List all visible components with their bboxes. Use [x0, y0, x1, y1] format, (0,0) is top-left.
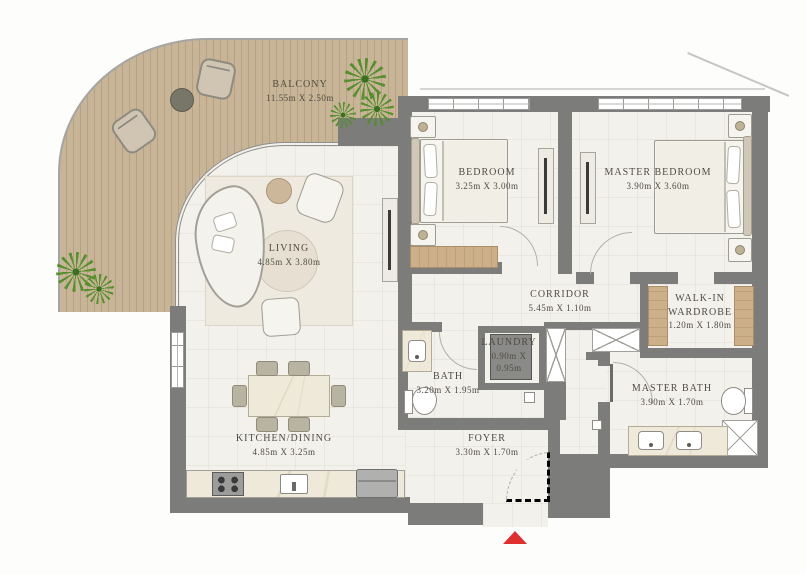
nightstand	[410, 224, 436, 246]
room-name: CORRIDOR	[504, 288, 616, 302]
nightstand	[728, 238, 752, 262]
roof-edge-line	[687, 52, 789, 97]
room-dims: 5.45m X 1.10m	[504, 302, 616, 314]
wall	[598, 352, 610, 366]
plant-icon	[84, 274, 114, 304]
pillow	[726, 146, 741, 185]
nightstand	[728, 114, 752, 138]
room-label-balcony: BALCONY 11.55m X 2.50m	[238, 78, 362, 104]
room-name: MASTER BEDROOM	[596, 166, 720, 180]
room-dims: 11.55m X 2.50m	[238, 92, 362, 104]
room-name: WALK-IN WARDROBE	[660, 292, 740, 319]
service-shaft	[546, 328, 566, 382]
room-name: BALCONY	[238, 78, 362, 92]
wall	[548, 388, 560, 458]
room-dims: 3.25m X 3.00m	[430, 180, 544, 192]
wall	[640, 348, 768, 358]
sink	[408, 340, 426, 362]
bed-headboard	[743, 136, 752, 236]
dining-table	[248, 375, 330, 417]
room-dims: 4.85m X 3.80m	[239, 256, 339, 268]
wall	[630, 272, 678, 284]
window	[598, 98, 742, 110]
entrance-floor	[483, 503, 548, 527]
room-name: BATH	[406, 370, 490, 384]
room-name: LAUNDRY	[478, 336, 540, 350]
bed-headboard	[411, 138, 420, 224]
sink	[676, 431, 702, 450]
parapet-line	[420, 88, 765, 90]
room-name: LIVING	[239, 242, 339, 256]
window	[171, 332, 184, 388]
service-shaft	[592, 328, 640, 352]
dining-chair	[288, 417, 310, 432]
room-label-living: LIVING 4.85m X 3.80m	[239, 242, 339, 268]
side-table	[170, 88, 194, 112]
faucet-icon	[292, 482, 296, 491]
tv-icon	[544, 158, 547, 214]
plant-icon	[360, 92, 394, 126]
room-label-master-bath: MASTER BATH 3.90m X 1.70m	[614, 382, 730, 408]
room-name: MASTER BATH	[614, 382, 730, 396]
pillow	[726, 190, 741, 229]
lamp-icon	[418, 230, 428, 240]
room-name: FOYER	[437, 432, 537, 446]
coffee-table	[266, 178, 292, 204]
room-dims: 3.20m X 1.95m	[406, 384, 490, 396]
room-label-laundry: LAUNDRY 0.90m X 0.95m	[478, 336, 540, 374]
room-name: BEDROOM	[430, 166, 544, 180]
armchair	[261, 297, 302, 338]
switch-box	[524, 392, 535, 403]
wall	[548, 454, 768, 468]
room-label-foyer: FOYER 3.30m X 1.70m	[437, 432, 537, 458]
room-label-master-bedroom: MASTER BEDROOM 3.90m X 3.60m	[596, 166, 720, 192]
dining-chair	[232, 385, 247, 407]
lamp-icon	[418, 122, 428, 132]
wall	[548, 468, 610, 518]
room-dims: 3.30m X 1.70m	[437, 446, 537, 458]
wall	[408, 503, 483, 525]
dining-chair	[256, 361, 278, 376]
wall	[398, 112, 412, 330]
room-label-bath: BATH 3.20m X 1.95m	[406, 370, 490, 396]
stove	[212, 472, 244, 496]
wall	[170, 497, 410, 513]
sink	[638, 431, 664, 450]
fridge	[356, 469, 398, 498]
entry-marker-icon	[503, 531, 527, 544]
switch-box	[592, 420, 602, 430]
room-label-kitchen-dining: KITCHEN/DINING 4.85m X 3.25m	[228, 432, 340, 458]
wall	[558, 112, 572, 274]
nightstand	[410, 116, 436, 138]
room-dims: 3.90m X 1.70m	[614, 396, 730, 408]
room-dims: 1.20m X 1.80m	[660, 319, 740, 331]
room-label-corridor: CORRIDOR 5.45m X 1.10m	[504, 288, 616, 314]
fridge-line	[358, 480, 396, 482]
wall	[640, 284, 648, 348]
dining-chair	[256, 417, 278, 432]
dining-chair	[288, 361, 310, 376]
room-dims: 4.85m X 3.25m	[228, 446, 340, 458]
window	[428, 98, 530, 110]
tv-icon	[388, 210, 391, 270]
room-label-walk-in-wardrobe: WALK-IN WARDROBE 1.20m X 1.80m	[660, 292, 740, 331]
plant-icon	[330, 102, 356, 128]
lamp-icon	[735, 121, 745, 131]
lamp-icon	[735, 245, 745, 255]
wall	[752, 104, 768, 468]
floor-plan: BALCONY 11.55m X 2.50m BEDROOM 3.25m X 3…	[0, 0, 806, 575]
wardrobe	[410, 246, 498, 268]
tv-icon	[586, 162, 589, 214]
room-label-bedroom: BEDROOM 3.25m X 3.00m	[430, 166, 544, 192]
wall	[398, 418, 548, 430]
room-name: KITCHEN/DINING	[228, 432, 340, 446]
room-dims: 3.90m X 3.60m	[596, 180, 720, 192]
dining-chair	[331, 385, 346, 407]
wall	[714, 272, 756, 284]
